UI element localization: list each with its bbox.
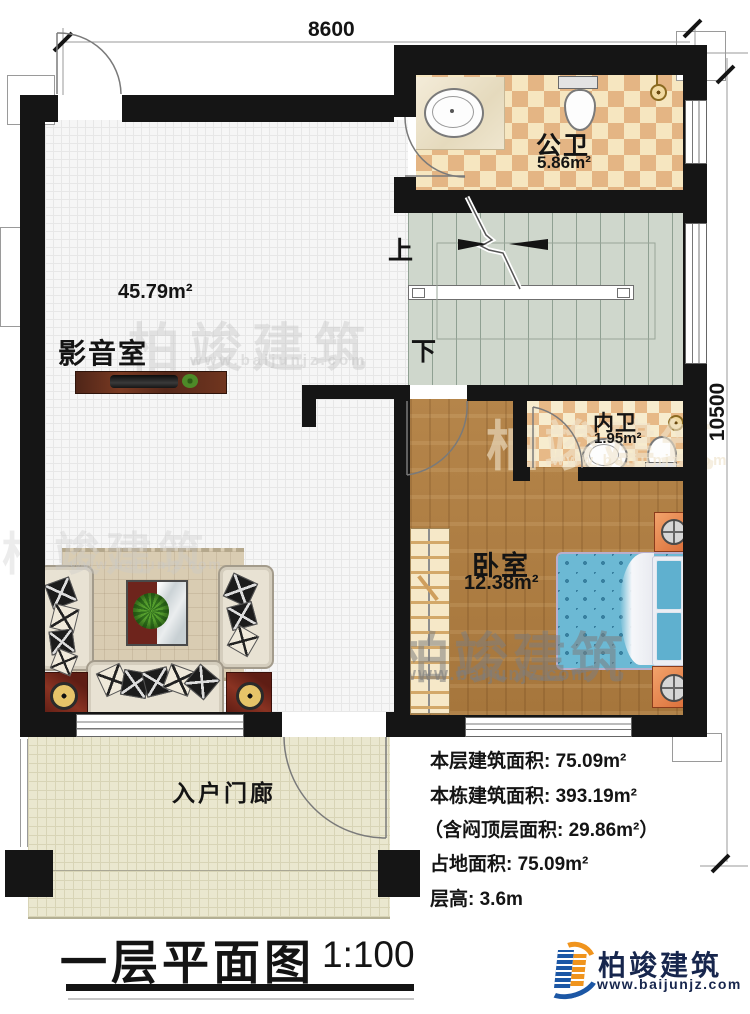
public-shower-head bbox=[650, 84, 667, 101]
info-line-storey-height: 层高: 3.6m bbox=[430, 884, 523, 911]
wall-media-bottom-right bbox=[386, 712, 410, 737]
wall-bath-top bbox=[394, 45, 707, 75]
porch-left-edge bbox=[20, 739, 28, 847]
window-staircase bbox=[685, 223, 707, 364]
room-area-public-bath: 5.86m² bbox=[537, 153, 591, 173]
room-area-media: 45.79m² bbox=[118, 281, 193, 304]
room-area-inner-bath: 1.95m² bbox=[594, 430, 642, 447]
info-line-building-area: 本栋建筑面积: 393.19m² bbox=[430, 781, 637, 808]
bed-pillow-top bbox=[656, 560, 682, 610]
stair-handrail-cap-right bbox=[617, 288, 630, 298]
window-public-bath bbox=[685, 100, 707, 164]
info-line-attic-area: （含闷顶层面积: 29.86m²） bbox=[424, 815, 658, 842]
wall-under-stairs bbox=[302, 385, 410, 399]
floor-plan-sheet: 柏竣建筑 www.baijunjz.com 柏竣建筑 www.baijunjz.… bbox=[0, 0, 750, 1014]
table-plant bbox=[133, 593, 169, 629]
stairs-up-label: 上 bbox=[388, 231, 413, 267]
porch-pillar-right bbox=[378, 850, 420, 897]
dimension-top: 8600 bbox=[308, 18, 355, 42]
watermark-media-url: www.baijunjz.com bbox=[190, 352, 367, 369]
wall-bath-left-upper bbox=[394, 70, 416, 117]
wall-top-media-right bbox=[122, 95, 394, 122]
info-line-floor-area: 本层建筑面积: 75.09m² bbox=[430, 746, 626, 773]
public-bath-sink-drain bbox=[450, 109, 454, 113]
wall-innerbath-left bbox=[513, 401, 527, 477]
lamp-right bbox=[236, 682, 264, 710]
bed-pillow-bottom bbox=[656, 612, 682, 661]
company-website: www.baijunjz.com bbox=[597, 976, 742, 992]
wall-left bbox=[20, 95, 45, 737]
title-underline-thick bbox=[66, 984, 414, 991]
room-area-bedroom: 12.38m² bbox=[464, 572, 539, 595]
wall-innerbath-top bbox=[467, 385, 690, 401]
wall-innerbath-bottom-left bbox=[513, 467, 530, 481]
porch-pillar-left bbox=[5, 850, 53, 897]
exterior-pad-bottom-right bbox=[672, 733, 722, 762]
info-line-footprint-area: 占地面积: 75.09m² bbox=[430, 849, 588, 876]
room-label-porch: 入户门廊 bbox=[172, 774, 276, 808]
wall-right bbox=[683, 70, 707, 737]
stair-handrail bbox=[408, 285, 634, 300]
porch-step-line bbox=[28, 870, 390, 871]
company-logo-icon bbox=[542, 944, 594, 994]
wall-bath-left-stub bbox=[394, 177, 416, 190]
watermark-media-text: 柏竣建筑 bbox=[128, 306, 376, 381]
room-label-media: 影音室 bbox=[58, 332, 148, 372]
wall-under-stairs-stub bbox=[302, 399, 316, 427]
wall-bedroom-left bbox=[394, 399, 410, 715]
sheet-scale: 1:100 bbox=[322, 934, 415, 976]
sheet-title: 一层平面图 bbox=[60, 924, 315, 993]
porch-floor bbox=[28, 737, 390, 919]
dimension-right: 10500 bbox=[706, 374, 730, 450]
stairs-down-label: 下 bbox=[411, 332, 436, 368]
watermark-bedroom-url: www.baijunjz.com bbox=[402, 664, 589, 685]
watermark-sofa-url: www.baijunjz.com bbox=[70, 556, 223, 572]
window-media-room bbox=[76, 714, 244, 737]
wall-innerbath-bottom-right bbox=[578, 467, 690, 481]
window-bedroom bbox=[465, 717, 632, 737]
stair-handrail-cap-left bbox=[412, 288, 425, 298]
wall-bath-stairs bbox=[394, 190, 683, 213]
lamp-left bbox=[50, 682, 78, 710]
public-toilet-tank bbox=[558, 76, 598, 89]
title-underline-thin bbox=[68, 998, 414, 1000]
exterior-pad-left bbox=[0, 227, 21, 327]
wall-media-bottom-pillar bbox=[238, 712, 282, 737]
